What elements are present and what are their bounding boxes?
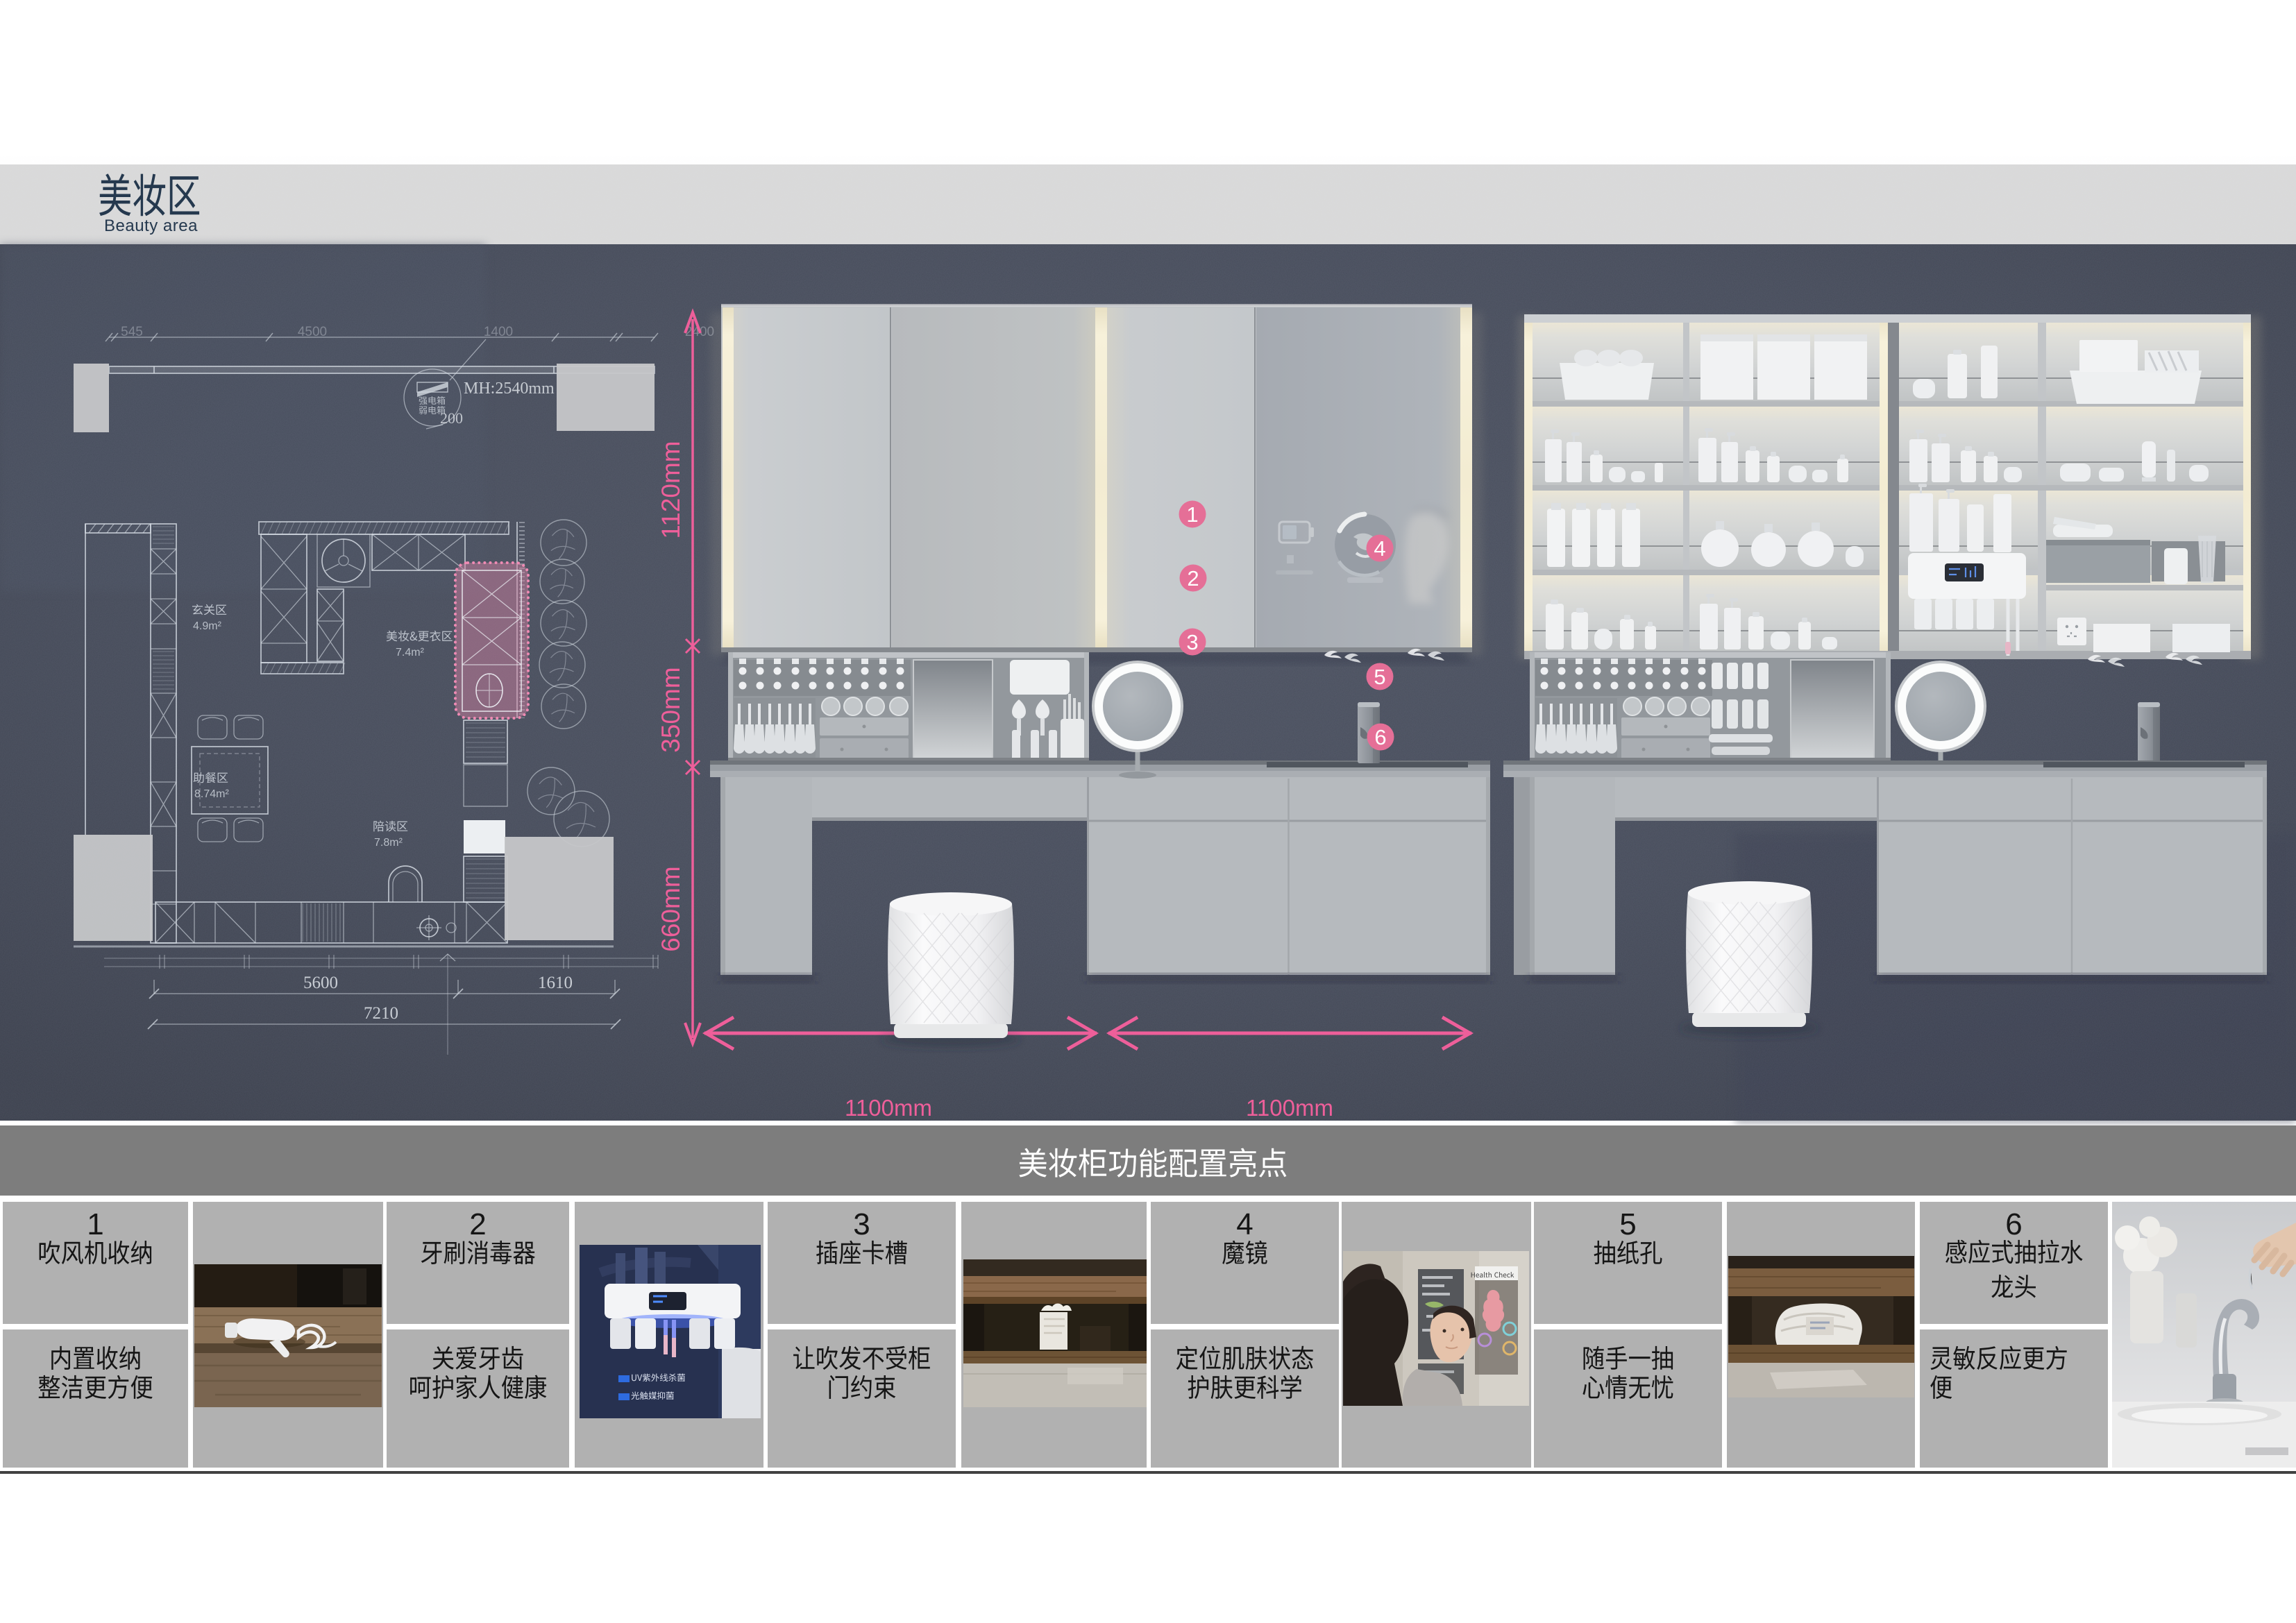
svg-text:1610: 1610 [538, 974, 573, 992]
svg-text:7.8m²: 7.8m² [374, 837, 403, 849]
svg-text:4500: 4500 [298, 325, 327, 339]
svg-text:4: 4 [1374, 536, 1385, 561]
svg-text:Beauty area: Beauty area [104, 216, 198, 235]
svg-text:7.4m²: 7.4m² [396, 647, 425, 658]
svg-text:3: 3 [853, 1207, 870, 1241]
svg-text:200: 200 [440, 409, 463, 427]
svg-text:6: 6 [1374, 725, 1386, 749]
svg-text:2: 2 [469, 1207, 486, 1241]
svg-text:660mm: 660mm [657, 866, 685, 951]
svg-text:1120mm: 1120mm [657, 441, 685, 538]
svg-text:8.74m²: 8.74m² [194, 788, 229, 800]
svg-text:1100mm: 1100mm [845, 1095, 932, 1121]
svg-text:1400: 1400 [484, 325, 513, 339]
svg-text:3: 3 [1186, 630, 1198, 654]
svg-text:350mm: 350mm [657, 667, 685, 752]
svg-text:5: 5 [1374, 665, 1385, 689]
svg-text:1100mm: 1100mm [1246, 1095, 1333, 1121]
svg-text:5: 5 [1619, 1207, 1636, 1241]
svg-text:4.9m²: 4.9m² [193, 620, 222, 632]
svg-text:1: 1 [1186, 502, 1198, 527]
svg-text:7210: 7210 [364, 1004, 398, 1023]
svg-text:6: 6 [2005, 1207, 2022, 1241]
svg-text:MH:2540mm: MH:2540mm [464, 380, 555, 398]
svg-text:2: 2 [1187, 566, 1199, 590]
svg-text:5600: 5600 [303, 974, 338, 992]
svg-text:1: 1 [87, 1207, 103, 1241]
svg-text:4: 4 [1236, 1207, 1253, 1241]
svg-text:545: 545 [121, 325, 143, 339]
